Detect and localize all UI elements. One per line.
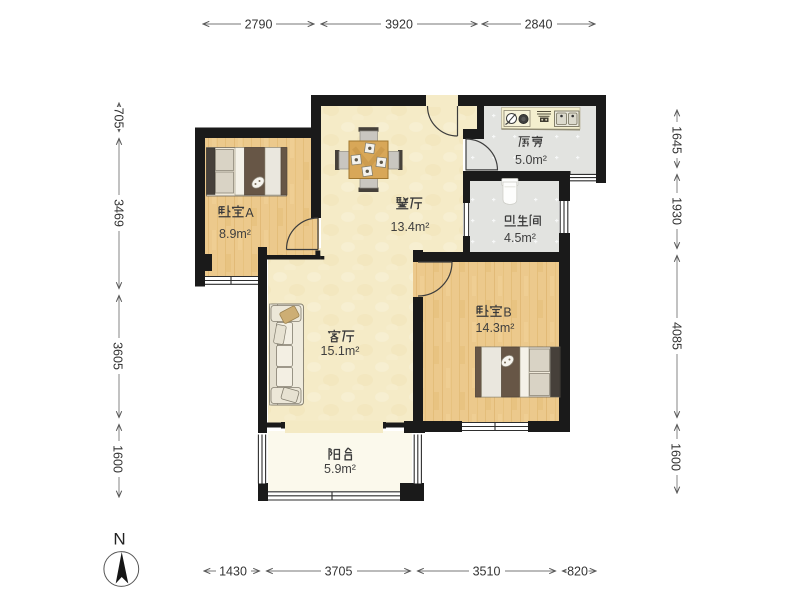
svg-text:4.5m²: 4.5m² xyxy=(504,231,536,245)
svg-text:8.9m²: 8.9m² xyxy=(219,227,251,241)
svg-text:1600: 1600 xyxy=(111,445,125,473)
svg-text:2840: 2840 xyxy=(525,18,553,32)
svg-text:N: N xyxy=(113,530,125,549)
svg-text:820: 820 xyxy=(567,565,588,579)
svg-text:3920: 3920 xyxy=(385,18,413,32)
svg-text:4085: 4085 xyxy=(670,322,684,350)
svg-text:3605: 3605 xyxy=(111,342,125,370)
svg-text:3469: 3469 xyxy=(112,199,126,227)
svg-text:3510: 3510 xyxy=(473,565,501,579)
svg-text:705: 705 xyxy=(112,108,126,129)
svg-text:13.4m²: 13.4m² xyxy=(391,220,430,234)
svg-text:14.3m²: 14.3m² xyxy=(476,321,515,335)
svg-text:2790: 2790 xyxy=(245,18,273,32)
svg-text:15.1m²: 15.1m² xyxy=(321,344,360,358)
svg-text:B: B xyxy=(503,305,511,319)
svg-text:1430: 1430 xyxy=(219,565,247,579)
svg-text:A: A xyxy=(245,206,254,220)
svg-text:1930: 1930 xyxy=(670,197,684,225)
svg-text:3705: 3705 xyxy=(325,565,353,579)
svg-text:1645: 1645 xyxy=(670,126,684,154)
svg-text:1600: 1600 xyxy=(669,443,683,471)
svg-text:5.9m²: 5.9m² xyxy=(324,462,356,476)
svg-text:5.0m²: 5.0m² xyxy=(515,153,547,167)
